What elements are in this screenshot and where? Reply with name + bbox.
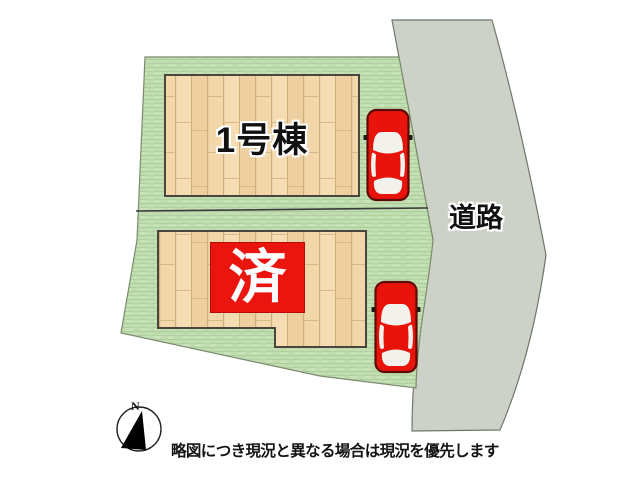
car-icon bbox=[364, 110, 413, 200]
sold-badge: 済 bbox=[210, 242, 305, 313]
road-label: 道路 bbox=[449, 196, 503, 235]
car-icon bbox=[372, 282, 421, 372]
compass-north-label: N bbox=[131, 399, 140, 414]
site-plan: 1号棟 済 道路 N 略図につき現況と異なる場合は現況を優先します bbox=[0, 0, 640, 480]
disclaimer-text: 略図につき現況と異なる場合は現況を優先します bbox=[171, 439, 499, 461]
site-plan-drawing bbox=[0, 0, 640, 480]
building-1-label: 1号棟 bbox=[165, 112, 359, 163]
